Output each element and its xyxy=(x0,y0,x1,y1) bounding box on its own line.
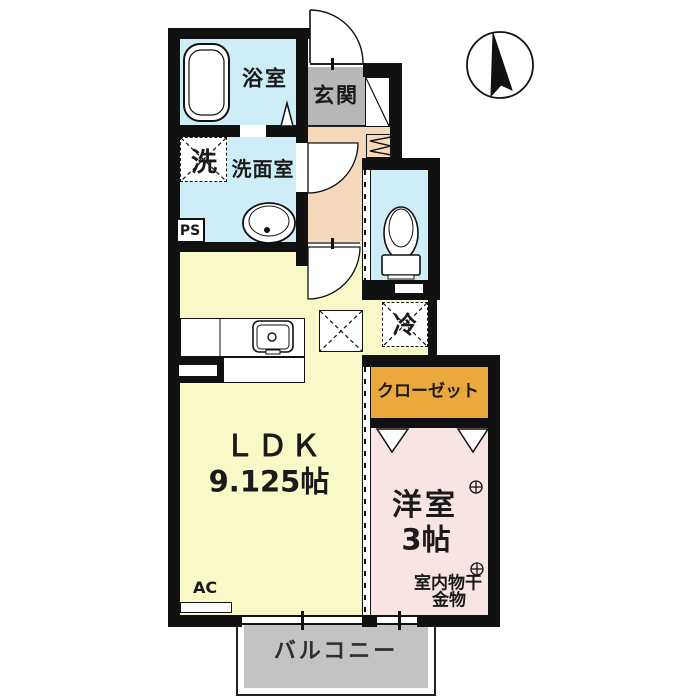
hall-floor xyxy=(308,127,363,242)
wall-stub-hall-door xyxy=(296,252,308,266)
wall-bottom-a xyxy=(168,615,242,627)
washer-label: 洗 xyxy=(191,150,217,176)
wall-top xyxy=(168,28,310,39)
kitchen-counter-lower xyxy=(223,357,305,383)
ldk-western-partition xyxy=(362,367,371,615)
wall-toilet-right xyxy=(428,158,440,300)
entrance-threshold xyxy=(310,63,363,65)
closet-label: クローゼット xyxy=(377,384,479,401)
refrigerator-label: 冷 xyxy=(393,313,417,337)
toilet-wall-niche xyxy=(394,283,424,294)
wall-washroom-right-lower xyxy=(296,192,308,242)
washroom-label: 洗面室 xyxy=(232,159,295,179)
kitchen-counter xyxy=(180,318,305,357)
wall-right xyxy=(488,355,500,627)
balcony-label: バルコニー xyxy=(274,641,399,663)
kitchen-half-wall-niche xyxy=(178,364,218,377)
entrance-hall-boundary xyxy=(308,125,365,127)
entrance-door-arc xyxy=(310,10,363,63)
entrance-label: 玄関 xyxy=(313,86,359,107)
window-western-room xyxy=(377,615,417,625)
ldk-label: ＬＤＫ xyxy=(225,432,324,462)
entrance-door-tick xyxy=(331,58,334,70)
western-room-label: 洋室 xyxy=(392,491,458,521)
floor-plan: 浴室 玄関 洗 洗面室 PS 冷 ＬＤＫ 9.125帖 クローゼット 洋室 3帖… xyxy=(0,0,700,700)
shoe-cabinet xyxy=(365,77,390,127)
ldk-size-label: 9.125帖 xyxy=(209,468,330,497)
wall-closet-top xyxy=(362,355,500,367)
toilet-floor xyxy=(371,170,428,280)
partition-dashes xyxy=(364,170,366,280)
ac-label: AC xyxy=(193,580,217,596)
western-room-size-label: 3帖 xyxy=(401,526,450,555)
wall-entrance-right xyxy=(390,63,402,158)
north-arrow xyxy=(467,32,533,98)
wall-closet-bottom xyxy=(368,418,488,428)
toilet-door-partition xyxy=(362,170,371,280)
laundry-hardware-label-line2: 金物 xyxy=(432,593,466,610)
wall-bottom-c xyxy=(417,615,500,627)
wall-bottom-b xyxy=(362,615,377,627)
ac-outdoor-unit xyxy=(180,602,232,613)
pipe-space-label: PS xyxy=(180,224,200,238)
partition-dashes xyxy=(364,367,366,615)
wall-left xyxy=(168,28,180,627)
hall-ldk-door-tick xyxy=(331,238,334,249)
wall-bath-washroom-b xyxy=(266,125,308,137)
bath-label: 浴室 xyxy=(242,69,288,90)
wall-bath-washroom-a xyxy=(168,125,240,137)
window-tick-left xyxy=(301,611,304,630)
window-tick-right xyxy=(398,611,401,630)
floor-hatch-box xyxy=(319,310,363,352)
wall-washroom-bottom xyxy=(168,242,308,252)
